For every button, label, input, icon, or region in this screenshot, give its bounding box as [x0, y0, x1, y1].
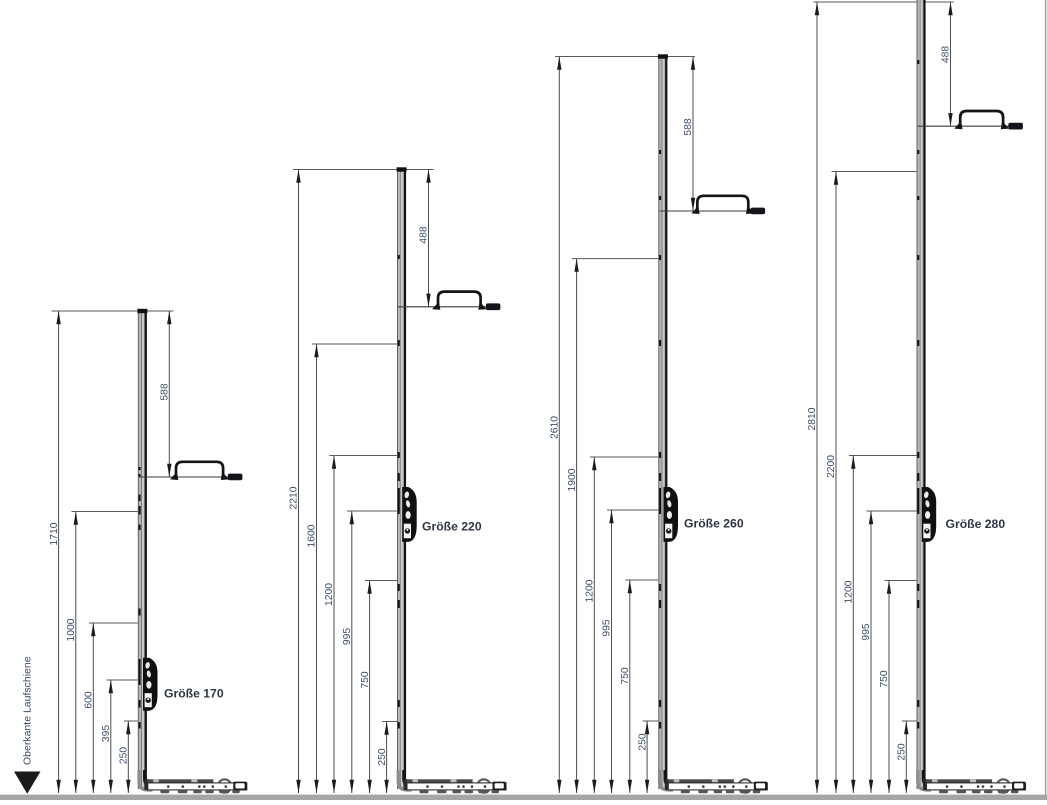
svg-text:995: 995	[861, 623, 872, 640]
svg-text:2610: 2610	[550, 416, 561, 439]
svg-text:1200: 1200	[585, 579, 596, 602]
svg-text:750: 750	[360, 671, 371, 688]
svg-text:Oberkante Laufschiene: Oberkante Laufschiene	[22, 656, 34, 765]
svg-text:2210: 2210	[289, 486, 300, 509]
svg-text:1200: 1200	[844, 580, 855, 603]
svg-text:995: 995	[602, 619, 613, 636]
svg-text:750: 750	[879, 670, 890, 687]
svg-text:Größe 170: Größe 170	[164, 686, 224, 700]
svg-text:250: 250	[119, 747, 130, 764]
svg-text:488: 488	[419, 226, 430, 243]
svg-text:588: 588	[683, 118, 694, 135]
svg-text:1200: 1200	[324, 583, 335, 606]
svg-text:1900: 1900	[567, 468, 578, 491]
svg-text:Größe 260: Größe 260	[684, 516, 744, 530]
svg-text:600: 600	[84, 691, 95, 708]
svg-text:2810: 2810	[807, 407, 818, 430]
svg-text:1600: 1600	[307, 524, 318, 547]
svg-text:Größe 280: Größe 280	[946, 517, 1006, 531]
svg-text:995: 995	[342, 628, 353, 645]
svg-text:250: 250	[637, 733, 648, 750]
svg-text:Größe 220: Größe 220	[422, 519, 482, 533]
svg-text:395: 395	[101, 725, 112, 742]
svg-text:250: 250	[897, 743, 908, 760]
svg-text:488: 488	[941, 46, 952, 63]
svg-text:1000: 1000	[66, 618, 77, 641]
svg-text:588: 588	[160, 383, 171, 400]
svg-text:2200: 2200	[826, 455, 837, 478]
svg-text:750: 750	[620, 667, 631, 684]
svg-text:1710: 1710	[49, 522, 60, 545]
svg-text:250: 250	[377, 748, 388, 765]
